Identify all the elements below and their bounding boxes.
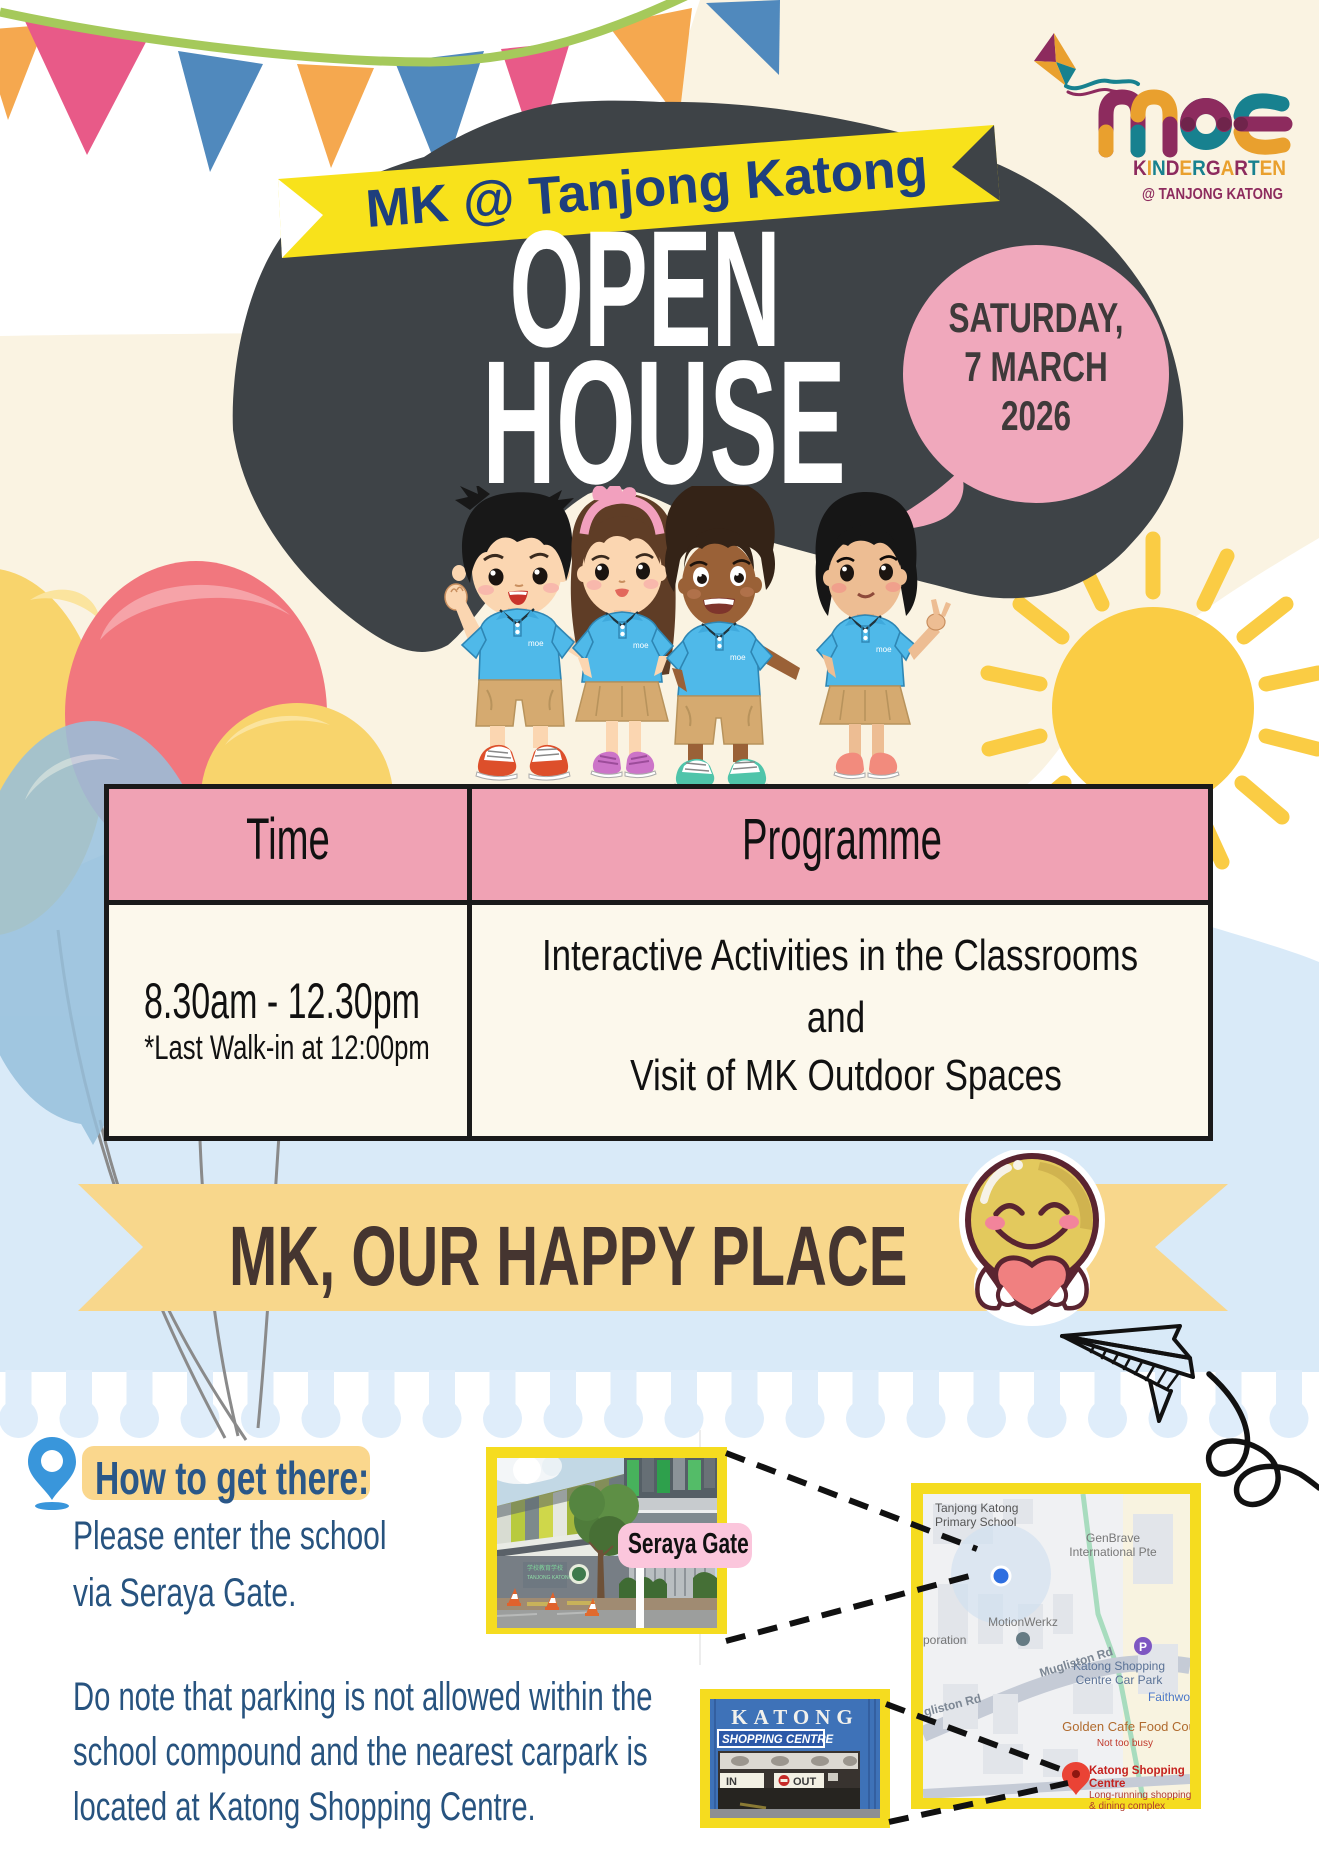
svg-text:moe: moe — [876, 645, 892, 654]
svg-text:KINDERGARTEN: KINDERGARTEN — [1133, 157, 1286, 180]
svg-text:moe: moe — [633, 641, 649, 650]
svg-text:moe: moe — [730, 653, 746, 662]
svg-text:moe: moe — [528, 639, 544, 648]
svg-text:@ TANJONG KATONG: @ TANJONG KATONG — [1142, 186, 1283, 203]
